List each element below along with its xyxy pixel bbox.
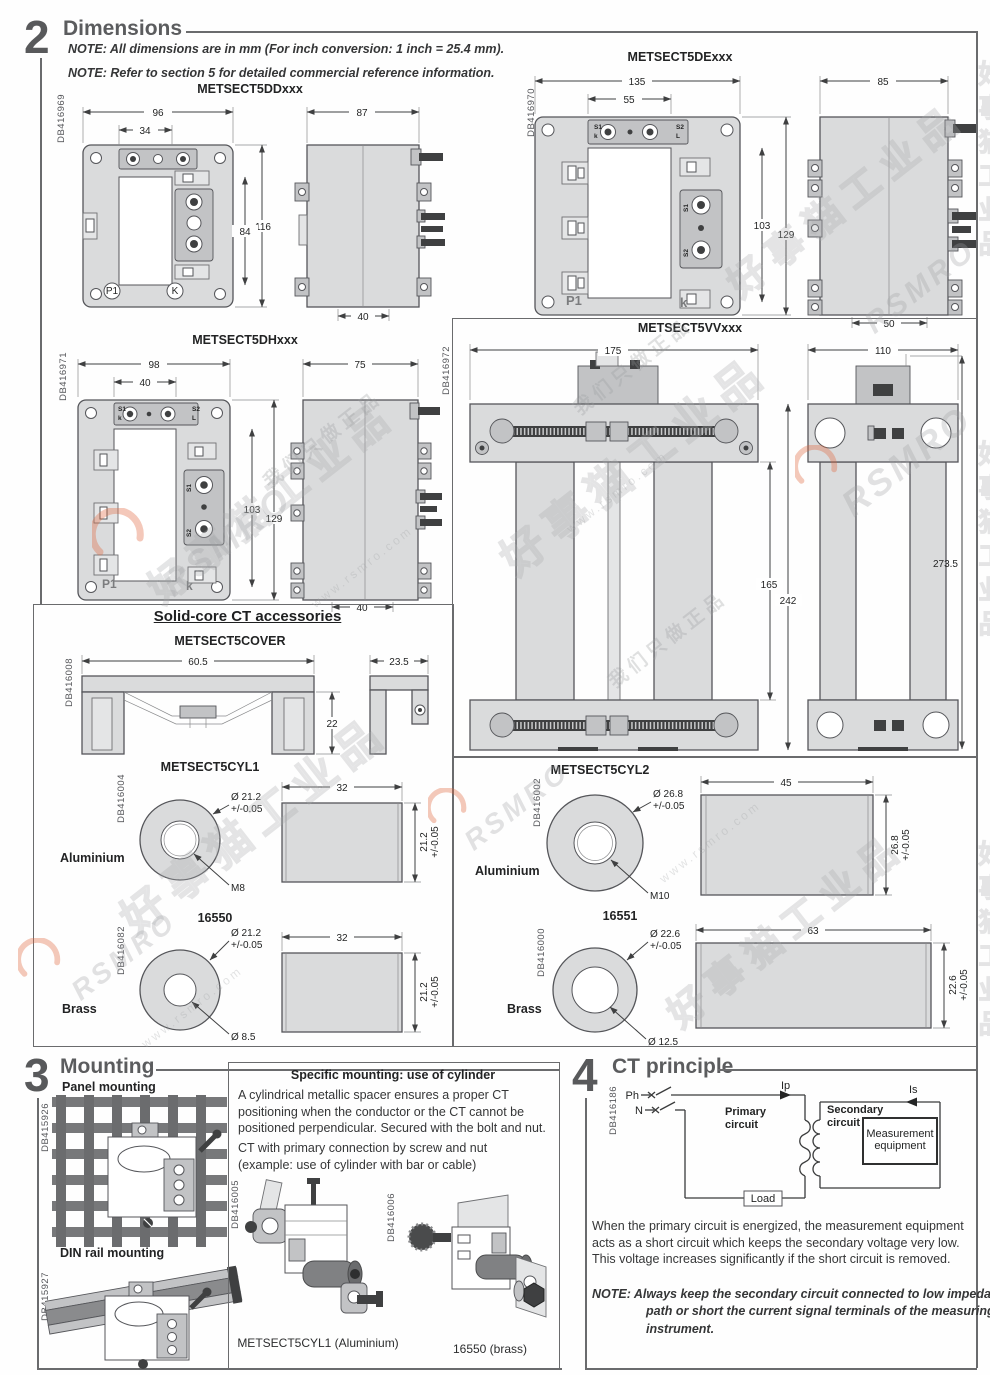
dh-rs2-label: S2 — [186, 529, 193, 537]
ip-label: Ip — [781, 1080, 790, 1092]
b50-od-tol: +/-0.05 — [231, 940, 263, 951]
dd-dim-window-width: 34 — [139, 126, 151, 137]
de-s2-label: S2 — [676, 124, 684, 131]
dh-drawing: S1 k S2 L S1 S2 P1 k 98 40 103 129 — [48, 345, 448, 613]
b51-dim-length: 63 — [807, 926, 819, 937]
cover-dim-height: 22 — [326, 719, 338, 730]
cover-side-dimensions: 23.5 — [370, 655, 428, 674]
b50-dim-length: 32 — [336, 933, 348, 944]
vv-dim-side-height: 273.5 — [933, 559, 958, 570]
secondary-label-1: Secondary — [827, 1104, 884, 1116]
datasheet-page: 2 Dimensions NOTE: All dimensions are in… — [0, 0, 990, 1375]
cyl1-front-view: Ø 21.2 +/-0.05 M8 — [140, 792, 263, 894]
accessories-title: Solid-core CT accessories — [140, 608, 355, 625]
cyl2-dim-dia: 26.8 — [890, 835, 901, 855]
dd-dim-window-height: 84 — [239, 227, 251, 238]
secondary-label-2: circuit — [827, 1117, 860, 1129]
bolt-lug — [341, 1283, 383, 1313]
fig2-ref: DB416006 — [386, 1193, 397, 1242]
de-dim-width: 135 — [629, 77, 646, 88]
de-rs2-label: S2 — [683, 249, 690, 257]
b50-drawing: Ø 21.2 +/-0.05 Ø 8.5 32 21.2 +/-0.05 — [125, 920, 445, 1050]
de-s1k-label: k — [594, 133, 598, 140]
de-p1-label: P1 — [566, 293, 582, 308]
b50-material: Brass — [62, 1002, 97, 1016]
dd-dim-width: 96 — [152, 108, 164, 119]
cyl1-od-tol: +/-0.05 — [231, 804, 263, 815]
dd-window — [119, 177, 172, 285]
ct-body — [285, 1178, 347, 1273]
cyl1-side-view: 32 21.2 +/-0.05 — [282, 781, 441, 882]
section4-bottom-rule — [585, 1368, 977, 1370]
dh-dim-side-width: 75 — [354, 360, 366, 371]
dh-rs1-label: S1 — [186, 484, 193, 492]
de-s2l-label: L — [676, 133, 680, 140]
cable-lug — [245, 1180, 287, 1243]
de-rs1-label: S1 — [683, 204, 690, 212]
b50-bore-label: Ø 8.5 — [231, 1032, 256, 1043]
fig1-caption: METSECT5CYL1 (Aluminium) — [234, 1336, 402, 1350]
ct-principle-note: NOTE: Always keep the secondary circuit … — [592, 1286, 990, 1338]
cover-drawing: 60.5 22 23.5 — [60, 648, 440, 760]
dh-s1k-label: k — [118, 415, 122, 422]
knob — [409, 1224, 451, 1250]
cyl1-dim-dia: 21.2 — [419, 832, 430, 852]
section3-number: 3 — [24, 1052, 50, 1098]
cover-front-view — [82, 676, 314, 754]
panel-mounting-figure — [52, 1095, 232, 1255]
note-reference: NOTE: Refer to section 5 for detailed co… — [68, 66, 495, 80]
fig1-ref: DB416005 — [230, 1180, 241, 1229]
dd-dim-side-width: 87 — [356, 108, 368, 119]
vv-drawing: 175 165 242 110 273.5 — [458, 336, 970, 751]
cyl2-dim-length: 45 — [780, 778, 792, 789]
dd-front-view: P1 K — [83, 145, 233, 307]
dh-dim-width: 98 — [148, 360, 160, 371]
vv-dim-width: 175 — [605, 346, 622, 357]
de-window — [588, 148, 671, 298]
load-label: Load — [751, 1193, 775, 1205]
section3-title: Mounting — [60, 1055, 154, 1079]
b51-bore-label: Ø 12.5 — [648, 1037, 678, 1048]
plate-nut — [514, 1257, 546, 1317]
dh-window — [114, 429, 176, 581]
dd-dim-depth: 40 — [357, 312, 369, 323]
cover-dim-side-width: 23.5 — [389, 657, 409, 668]
cyl2-material: Aluminium — [475, 864, 540, 878]
dh-p1-label: P1 — [102, 577, 117, 591]
de-dim-height: 129 — [778, 230, 795, 241]
dh-dim-window-width: 40 — [139, 378, 151, 389]
panel-mounting-ref: DB415926 — [40, 1103, 51, 1152]
cyl1-dim-length: 32 — [336, 783, 348, 794]
b51-od-tol: +/-0.05 — [650, 941, 682, 952]
cyl2-drawing: Ø 26.8 +/-0.05 M10 45 26.8 +/-0.05 — [538, 770, 974, 910]
primary-loop: Ip Load Primary circuit — [671, 1080, 810, 1206]
is-label: Is — [909, 1084, 918, 1096]
b50-front-view: Ø 21.2 +/-0.05 Ø 8.5 — [140, 928, 263, 1043]
b50-dim-dia-tol: +/-0.05 — [430, 976, 441, 1008]
b51-drawing: Ø 22.6 +/-0.05 Ø 12.5 63 22.6 +/-0.05 — [538, 920, 974, 1055]
de-side-view — [808, 117, 976, 315]
primary-label-2: circuit — [725, 1119, 758, 1131]
dh-s1-label: S1 — [118, 406, 126, 413]
dh-s2-label: S2 — [192, 406, 200, 413]
cyl1-material: Aluminium — [60, 851, 125, 865]
note-units: NOTE: All dimensions are in mm (For inch… — [68, 42, 504, 56]
section4-left-rule — [585, 1098, 587, 1368]
dh-dim-window-height: 103 — [244, 505, 261, 516]
measurement-label-1: Measurement — [866, 1128, 933, 1140]
specific-mounting-line2: (example: use of cylinder with bar or ca… — [238, 1157, 550, 1174]
cylinder-bar-figure — [245, 1175, 385, 1325]
ct-principle-paragraph: When the primary circuit is energized, t… — [592, 1218, 976, 1268]
cover-dim-width: 60.5 — [188, 657, 208, 668]
vv-ref: DB416972 — [441, 346, 452, 395]
b51-side-view: 63 22.6 +/-0.05 — [696, 924, 970, 1028]
din-mounting-figure — [45, 1258, 245, 1370]
supply-switches: Ph N — [626, 1087, 675, 1117]
cyl1-dim-dia-tol: +/-0.05 — [430, 826, 441, 858]
section2-title: Dimensions — [63, 17, 182, 41]
b50-dim-dia: 21.2 — [419, 982, 430, 1002]
cyl2-front-view: Ø 26.8 +/-0.05 M10 — [547, 789, 685, 902]
measurement-label-2: equipment — [874, 1140, 925, 1152]
section4-title: CT principle — [612, 1055, 733, 1079]
neutral-label: N — [635, 1105, 643, 1117]
dh-side-view — [291, 400, 442, 600]
note-text: Always keep the secondary circuit connec… — [634, 1287, 990, 1336]
specific-mounting-paragraph: A cylindrical metallic spacer ensures a … — [238, 1087, 550, 1137]
de-drawing: S1 k S2 L S1 S2 P1 k 135 55 103 129 — [510, 62, 976, 330]
cover-title: METSECT5COVER — [120, 634, 340, 648]
b51-od-label: Ø 22.6 — [650, 929, 680, 940]
cyl1-bore-label: M8 — [231, 883, 245, 894]
cyl2-od-tol: +/-0.05 — [653, 801, 685, 812]
vv-dim-h2: 242 — [780, 596, 797, 607]
vv-dim-side-width: 110 — [875, 346, 891, 357]
dd-side-view — [295, 145, 445, 307]
b51-dim-dia: 22.6 — [948, 975, 959, 995]
vv-dim-h1: 165 — [761, 580, 778, 591]
dd-k-label: K — [172, 286, 179, 297]
panel-mounting-label: Panel mounting — [62, 1080, 156, 1094]
b50-side-view: 32 21.2 +/-0.05 — [282, 931, 441, 1032]
de-k-label: k — [680, 295, 688, 310]
vv-front-view — [470, 352, 758, 751]
dh-s2l-label: L — [192, 415, 196, 422]
note-label: NOTE: — [592, 1287, 631, 1301]
ct-principle-diagram: Ph N Ip Load Primary circuit Is Secondar… — [595, 1080, 975, 1212]
de-dim-side-width: 85 — [877, 77, 889, 88]
phase-label: Ph — [626, 1090, 639, 1102]
cyl1-drawing: Ø 21.2 +/-0.05 M8 32 21.2 +/-0.05 — [125, 768, 445, 903]
cyl2-od-label: Ø 26.8 — [653, 789, 683, 800]
dh-dim-height: 129 — [266, 514, 283, 525]
dh-front-view: S1 k S2 L S1 S2 P1 k — [78, 400, 230, 600]
secondary-loop: Is Secondary circuit Measurement equipme… — [813, 1084, 940, 1188]
section2-left-rule — [40, 58, 42, 604]
b51-material: Brass — [507, 1002, 542, 1016]
primary-label-1: Primary — [725, 1106, 767, 1118]
dh-k-label: k — [186, 579, 193, 593]
vv-side-view — [808, 354, 958, 751]
dd-title: METSECT5DDxxx — [140, 82, 360, 96]
section4-rule — [718, 1069, 976, 1071]
vv-title: METSECT5VVxxx — [580, 321, 800, 335]
fig2-caption: 16550 (brass) — [430, 1342, 550, 1356]
cyl2-dim-dia-tol: +/-0.05 — [901, 829, 912, 861]
dd-drawing: P1 K 96 34 116 84 — [55, 95, 445, 325]
cyl2-bore-label: M10 — [650, 891, 670, 902]
section4-number: 4 — [572, 1052, 598, 1098]
de-dim-window-width: 55 — [623, 95, 635, 106]
section2-rule — [186, 31, 976, 33]
b50-od-label: Ø 21.2 — [231, 928, 261, 939]
cyl2-side-view: 45 26.8 +/-0.05 — [701, 776, 912, 895]
de-dim-window-height: 103 — [754, 221, 771, 232]
de-s1-label: S1 — [594, 124, 602, 131]
b51-dim-dia-tol: +/-0.05 — [959, 969, 970, 1001]
dd-p1-label: P1 — [106, 286, 119, 297]
cover-side-view — [370, 676, 428, 754]
cylinder-cable-figure — [400, 1185, 550, 1335]
section2-number: 2 — [24, 14, 50, 60]
specific-mounting-line1: CT with primary connection by screw and … — [238, 1140, 550, 1157]
section3-left-rule — [37, 1098, 39, 1370]
de-front-view: S1 k S2 L S1 S2 P1 k — [535, 117, 740, 315]
cyl1-od-label: Ø 21.2 — [231, 792, 261, 803]
b51-front-view: Ø 22.6 +/-0.05 Ø 12.5 — [553, 929, 682, 1048]
specific-mounting-title: Specific mounting: use of cylinder — [240, 1068, 546, 1082]
